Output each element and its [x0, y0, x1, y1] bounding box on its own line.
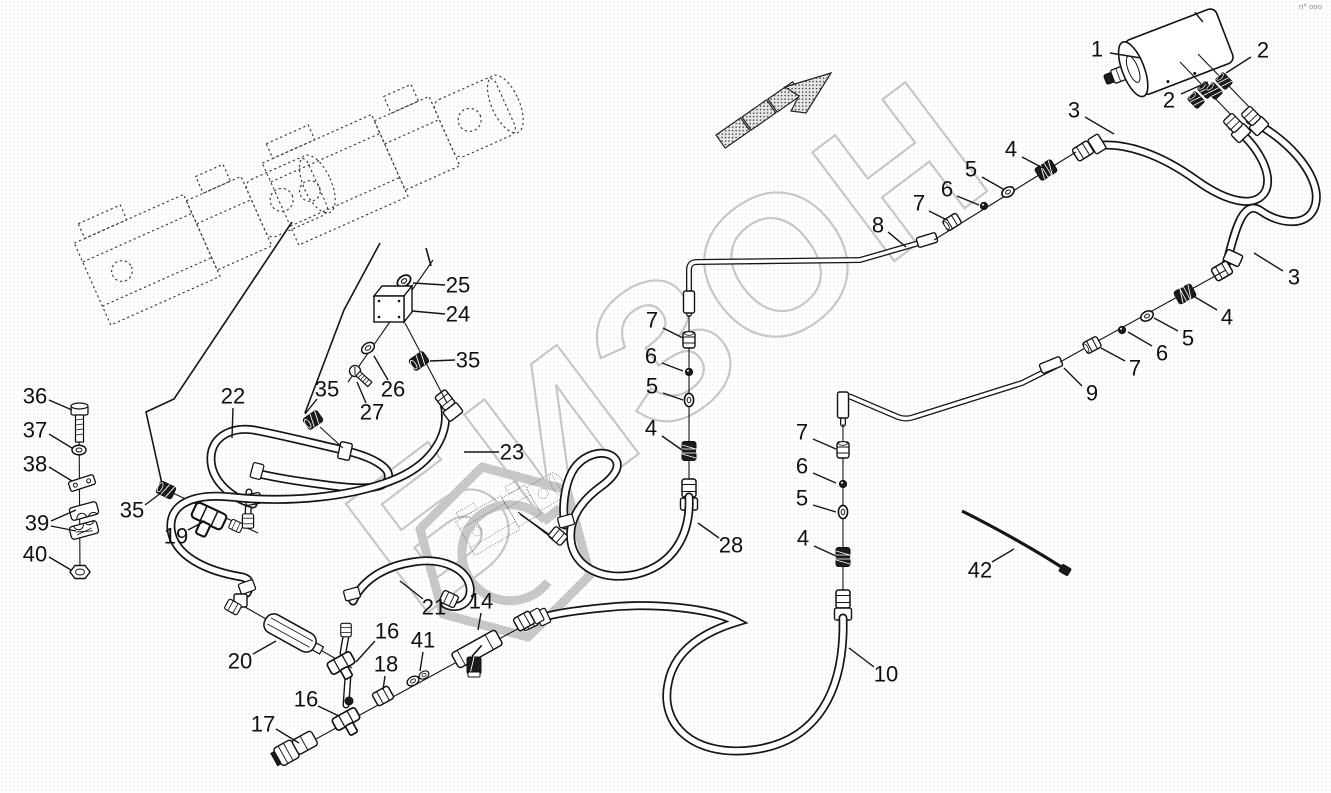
callout-label-7: 7 — [1129, 356, 1141, 381]
callout-label-8: 8 — [872, 213, 884, 238]
part-9-pipe — [838, 356, 1064, 424]
callout-label-10: 10 — [874, 662, 898, 687]
callout-label-35: 35 — [456, 348, 480, 373]
callout-label-7: 7 — [913, 191, 925, 216]
callout-label-4: 4 — [797, 526, 809, 551]
callout-label-5: 5 — [1182, 326, 1194, 351]
callout-leader — [813, 473, 836, 483]
callout-label-40: 40 — [23, 542, 47, 567]
callout-label-5: 5 — [646, 374, 658, 399]
callout-label-24: 24 — [446, 302, 470, 327]
callout-label-35: 35 — [315, 377, 339, 402]
callout-label-22: 22 — [221, 384, 245, 409]
callout-label-37: 37 — [23, 418, 47, 443]
callout-label-23: 23 — [500, 440, 524, 465]
callout-label-36: 36 — [23, 384, 47, 409]
fitting-column-right — [836, 424, 851, 612]
callout-label-27: 27 — [360, 400, 384, 425]
callout-label-2: 2 — [1257, 38, 1269, 63]
callout-label-28: 28 — [719, 533, 743, 558]
callout-leader — [49, 400, 72, 410]
callout-leader — [49, 434, 72, 448]
callout-label-19: 19 — [164, 524, 188, 549]
callout-leader — [813, 505, 836, 512]
callout-label-6: 6 — [1156, 341, 1168, 366]
callout-label-41: 41 — [411, 628, 435, 653]
part-24-block — [374, 286, 412, 322]
callout-leader — [1254, 253, 1283, 271]
callout-label-2: 2 — [1163, 88, 1175, 113]
parts-diagram: БИЗОН — [0, 0, 1331, 793]
callout-label-6: 6 — [645, 344, 657, 369]
callout-label-6: 6 — [796, 454, 808, 479]
callout-leader — [1128, 332, 1152, 346]
callout-leader — [1085, 117, 1114, 134]
callout-label-7: 7 — [796, 420, 808, 445]
callout-label-35: 35 — [120, 498, 144, 523]
callout-leader — [49, 467, 72, 481]
callout-label-4: 4 — [645, 416, 657, 441]
callout-label-3: 3 — [1288, 265, 1300, 290]
parts-diagram-page: БИЗОН — [0, 0, 1331, 793]
callout-leader — [145, 493, 161, 505]
callout-leader — [49, 557, 71, 570]
callout-label-7: 7 — [646, 308, 658, 333]
callout-label-3: 3 — [1068, 98, 1080, 123]
pump-assembly-phantom-right — [256, 43, 536, 245]
callout-label-6: 6 — [941, 177, 953, 202]
fitting-row-right — [1060, 270, 1226, 362]
callout-label-16: 16 — [294, 687, 318, 712]
callout-leader — [420, 652, 423, 671]
callout-leader — [1101, 348, 1125, 361]
callout-leader — [356, 641, 375, 662]
callout-leader — [1022, 157, 1043, 168]
corner-mark: п° ооо — [1299, 3, 1322, 11]
part-27-screw — [347, 363, 373, 388]
callout-label-1: 1 — [1091, 37, 1103, 62]
callout-label-17: 17 — [251, 712, 275, 737]
callout-leader — [430, 360, 455, 361]
callout-label-25: 25 — [446, 273, 470, 298]
callout-label-26: 26 — [381, 377, 405, 402]
callout-label-14: 14 — [469, 589, 493, 614]
callout-leader — [992, 549, 1014, 562]
callout-label-5: 5 — [796, 486, 808, 511]
callout-label-9: 9 — [1086, 381, 1098, 406]
callout-label-39: 39 — [25, 511, 49, 536]
fastener-stack-36-40 — [68, 403, 99, 579]
callout-leader — [232, 408, 233, 438]
callout-label-20: 20 — [228, 649, 252, 674]
callout-leader — [698, 523, 719, 538]
callout-leader — [1195, 297, 1217, 310]
callout-leader — [413, 283, 445, 285]
callout-label-42: 42 — [968, 558, 992, 583]
callout-leader — [1154, 318, 1178, 331]
callout-leader — [813, 439, 836, 449]
callout-label-4: 4 — [1005, 137, 1017, 162]
callout-label-16: 16 — [375, 619, 399, 644]
callout-label-4: 4 — [1221, 305, 1233, 330]
callout-label-38: 38 — [23, 452, 47, 477]
callout-leader — [814, 546, 836, 556]
part-17-coupling — [269, 729, 319, 769]
callout-leader — [849, 648, 874, 667]
callout-label-21: 21 — [422, 595, 446, 620]
pump-assembly-phantom-left — [68, 123, 348, 325]
callout-leader — [1064, 368, 1082, 386]
callout-leader — [253, 641, 276, 654]
callout-leader — [318, 706, 339, 716]
callout-label-18: 18 — [374, 652, 398, 677]
callout-label-5: 5 — [965, 157, 977, 182]
hose-10 — [519, 590, 852, 751]
callout-leader — [412, 311, 445, 314]
